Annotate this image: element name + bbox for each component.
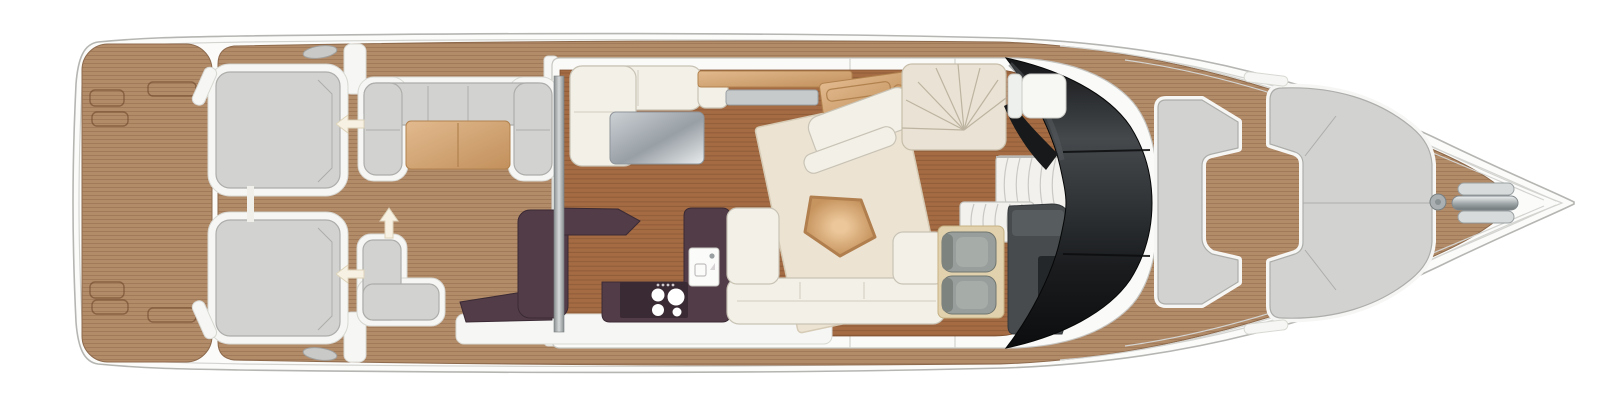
helm-seat-2	[942, 276, 996, 314]
cooktop	[620, 282, 688, 318]
yacht-deck-plan	[0, 0, 1600, 406]
stairs-up-flybridge	[902, 64, 1006, 150]
stern-sunpad-port	[208, 64, 348, 196]
patio-door-post	[554, 76, 564, 332]
navigator-seat	[1008, 74, 1066, 118]
sideboard-shelf	[726, 90, 818, 105]
swim-platform	[82, 44, 212, 362]
dinette-table	[610, 112, 704, 164]
sink	[689, 248, 719, 286]
stern-sunpad-starboard	[208, 212, 348, 344]
cockpit-table	[406, 121, 510, 169]
transom-walkway-line	[247, 186, 254, 222]
yacht-deck-plan-canvas	[0, 0, 1600, 406]
helm-seat-1	[942, 232, 996, 272]
